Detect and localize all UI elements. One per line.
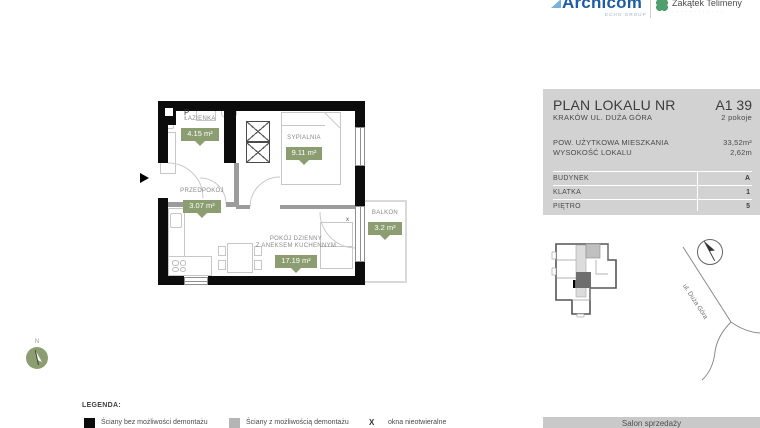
- archicom-logo-text: Archicom: [562, 0, 642, 12]
- room-area-badge: 3.07 m²: [183, 200, 220, 213]
- table-label: BUDYNEK: [553, 175, 589, 182]
- room-area-badge: 4.15 m²: [181, 128, 218, 141]
- wall-notch: [165, 108, 173, 116]
- plan-title: PLAN LOKALU NR: [553, 97, 676, 113]
- spec-label: WYSOKOŚĆ LOKALU: [553, 148, 632, 157]
- room-tag-living: POKÓJ DZIENNY Z ANEKSEM KUCHENNYM 17.19 …: [246, 236, 346, 268]
- room-name: ŁAZIENKA: [170, 116, 230, 123]
- logo-divider: [650, 0, 651, 18]
- wall-bottom-right: [208, 276, 365, 285]
- spec-label: POW. UŻYTKOWA MIESZKANIA: [553, 138, 669, 147]
- table-label: KLATKA: [553, 189, 581, 196]
- site-minimap: [550, 234, 622, 318]
- room-name: BALKON: [355, 210, 415, 217]
- floor-plan: P x ŁAZIENKA 4.15 m² SYPIALNIA 9.11 m² P…: [0, 0, 540, 428]
- north-compass-icon: [26, 347, 48, 369]
- legend-label: okna nieotwieralne: [388, 419, 446, 426]
- archicom-flag-icon: [551, 0, 561, 8]
- room-area-badge: 3.2 m²: [368, 222, 401, 235]
- legend-x-symbol: X: [369, 418, 374, 427]
- legend-label: Ściany z możliwością demontażu: [246, 419, 349, 426]
- legend-title: LEGENDA:: [82, 402, 121, 409]
- room-area-badge: 9.11 m²: [286, 147, 323, 160]
- window-kitchen: [184, 277, 208, 285]
- wall-bottom-left: [158, 276, 184, 285]
- estate-tagline: · · · · · · · · · · · ·: [672, 9, 723, 14]
- legend-label: Ściany bez możliwości demontażu: [101, 419, 208, 426]
- unit-number: A1 39: [715, 97, 752, 113]
- legend-swatch-solid-wall: [84, 418, 95, 428]
- table-row: KLATKA 1: [553, 185, 752, 199]
- wall-right-upper: [355, 101, 365, 127]
- room-name-line2: Z ANEKSEM KUCHENNYM: [246, 243, 346, 250]
- room-tag-bedroom: SYPIALNIA 9.11 m²: [274, 135, 334, 160]
- table-divider-line: [697, 171, 698, 211]
- shaft-box: [246, 121, 270, 142]
- table-row: BUDYNEK A: [553, 171, 752, 185]
- unit-info-box: PLAN LOKALU NR A1 39 KRAKÓW UL. DUŻA GÓR…: [543, 89, 760, 215]
- window-bedroom: [355, 127, 365, 166]
- rooms-count: 2 pokoje: [721, 113, 752, 122]
- spec-value: 2,62m: [730, 148, 752, 157]
- room-tag-bathroom: ŁAZIENKA 4.15 m²: [170, 116, 230, 141]
- room-tag-balcony: BALKON 3.2 m²: [355, 210, 415, 235]
- table-value: 5: [746, 203, 752, 210]
- building-table: BUDYNEK A KLATKA 1 PIĘTRO 5: [553, 171, 752, 213]
- estate-logo-text: Zakątek Telimeny: [672, 0, 742, 8]
- room-tag-hall: PRZEDPOKÓJ 3.07 m²: [172, 188, 232, 213]
- wall-bedroom-living-left: [236, 205, 250, 209]
- clover-icon: [656, 0, 668, 11]
- wall-right-lower: [355, 262, 365, 285]
- wall-hall-bedroom: [234, 163, 239, 207]
- sales-office-bar: Salon sprzedaży: [543, 417, 760, 428]
- room-name: PRZEDPOKÓJ: [172, 188, 232, 195]
- shaft-box: [246, 142, 270, 163]
- room-name: SYPIALNIA: [274, 135, 334, 142]
- table-row: PIĘTRO 5: [553, 199, 752, 213]
- room-area-badge: 17.19 m²: [275, 255, 317, 268]
- legend-swatch-demountable-wall: [229, 418, 240, 428]
- wall-bedroom-living-right: [280, 205, 356, 209]
- echo-group-label: ECHO GROUP: [605, 12, 647, 17]
- spec-value: 33,52m²: [723, 138, 752, 147]
- room-name: POKÓJ DZIENNY: [246, 236, 346, 243]
- wall-left-lower: [158, 198, 168, 285]
- info-panel: Archicom ECHO GROUP Zakątek Telimeny · ·…: [543, 0, 760, 428]
- plan-subtitle: KRAKÓW UL. DUŻA GÓRA: [553, 113, 652, 122]
- plan-sheet: P x ŁAZIENKA 4.15 m² SYPIALNIA 9.11 m² P…: [0, 0, 760, 428]
- street-curve: [655, 240, 760, 410]
- table-value: A: [745, 175, 752, 182]
- entrance-arrow-icon: [140, 173, 149, 183]
- table-label: PIĘTRO: [553, 203, 581, 210]
- nonopening-window-marker: x: [346, 217, 349, 223]
- wall-right-middle: [355, 166, 365, 206]
- table-value: 1: [746, 189, 752, 196]
